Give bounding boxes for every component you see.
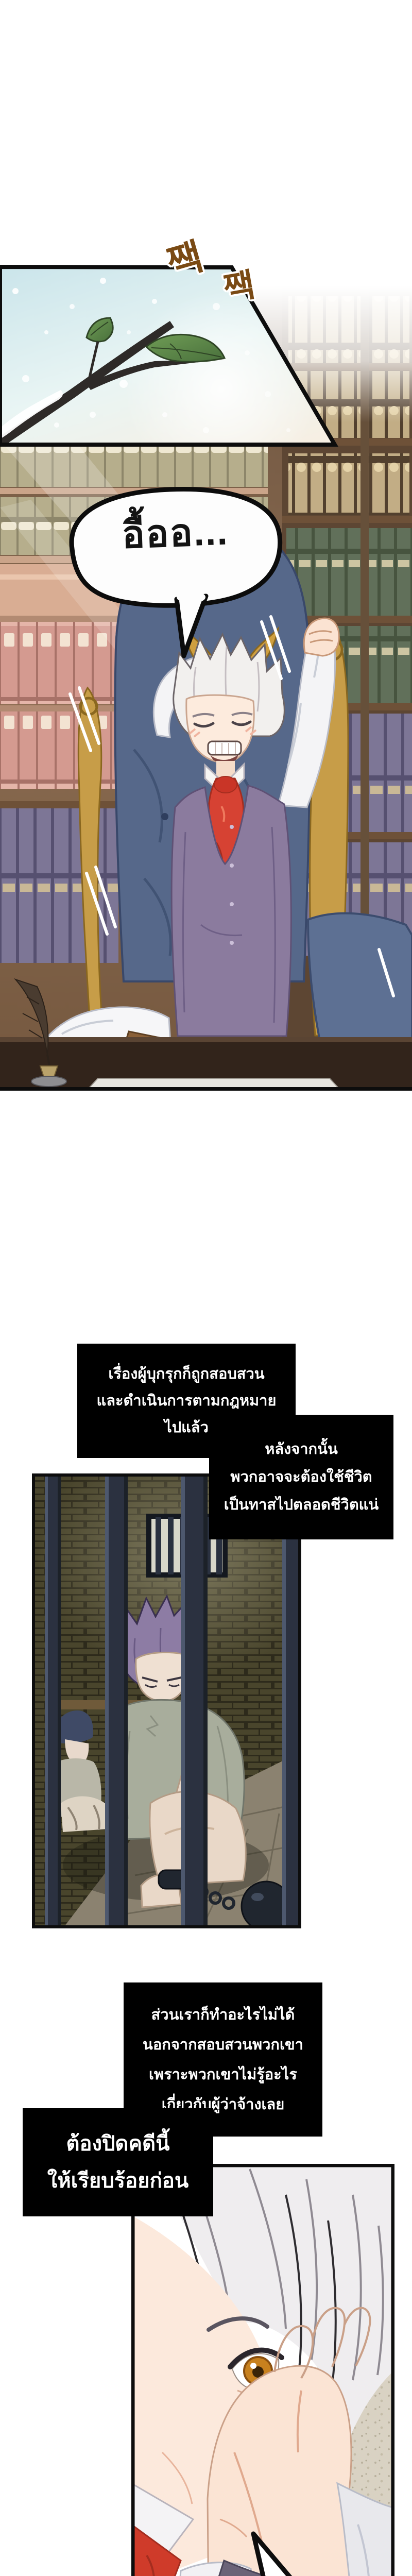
narration-line: ให้เรียบร้อยก่อน [47, 2162, 188, 2199]
narration-box-2: หลังจากนั้น พวกอาจจะต้องใช้ชีวิต เป็นทาส… [209, 1415, 393, 1539]
final-speech-bubble [180, 2509, 397, 2576]
narration-line: เป็นทาสไปตลอดชีวิตแน่ [224, 1491, 379, 1519]
narration-line: และดำเนินการตามกฎหมาย [97, 1387, 277, 1414]
yawn-bubble-text: อื้ออ... [76, 499, 274, 566]
cell-bar [105, 1473, 128, 1928]
narration-box-4: ต้องปิดคดีนี้ ให้เรียบร้อยก่อน [23, 2108, 213, 2216]
narration-line: เรื่องผู้บุกรุกก็ถูกสอบสวน [108, 1361, 264, 1387]
narration-line: นอกจากสอบสวนพวกเขา [143, 2030, 303, 2060]
narration-line: ไปแล้ว [164, 1414, 209, 1441]
bubble-tail [253, 2534, 304, 2576]
narration-line: ต้องปิดคดีนี้ [66, 2125, 170, 2162]
webtoon-page: 짹 짹 อื้ออ... เรื่องผู้บุกรุกก็ถูกสอบสวน … [0, 0, 412, 2576]
narration-line: เพราะพวกเขาไม่รู้อะไร [149, 2060, 297, 2090]
prison-cell-panel [32, 1473, 301, 1928]
cell-bar [45, 1473, 61, 1928]
narration-line: หลังจากนั้น [265, 1435, 338, 1463]
cell-bar [181, 1473, 208, 1928]
bubble-tail [177, 596, 206, 656]
snowy-branch-panel [0, 260, 412, 448]
chair-armrest [308, 913, 412, 1038]
narration-line: ส่วนเราก็ทำอะไรไม่ได้ [151, 2000, 295, 2030]
narration-line: พวกอาจจะต้องใช้ชีวิต [230, 1463, 372, 1491]
